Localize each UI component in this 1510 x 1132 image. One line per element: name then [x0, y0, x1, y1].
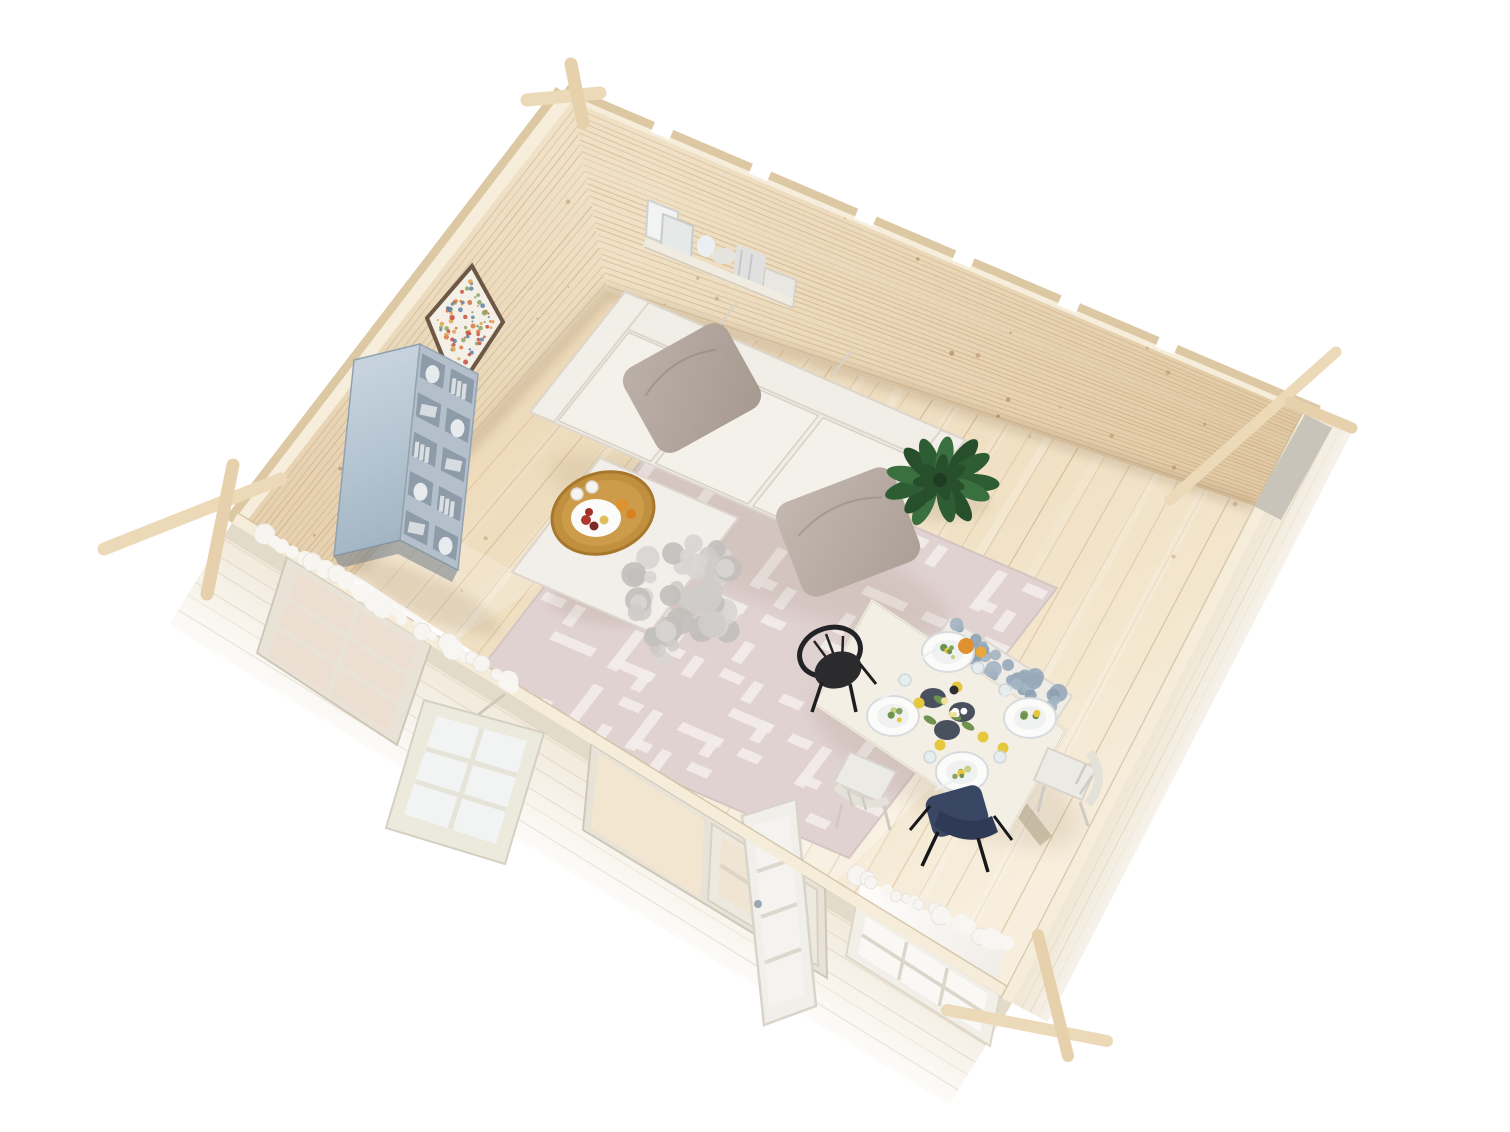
bookshelf	[334, 344, 478, 582]
cabin-render	[0, 0, 1510, 1132]
shelf-vase	[697, 235, 715, 257]
door-handle	[754, 900, 762, 908]
shelf-bowl	[712, 248, 736, 264]
tray-cup	[571, 488, 583, 500]
orange-fruit	[958, 638, 974, 654]
cabin-scene-svg	[0, 0, 1510, 1132]
tray-plate	[571, 499, 621, 537]
tray-cup	[586, 481, 598, 493]
corner-log-top-a	[527, 93, 600, 100]
